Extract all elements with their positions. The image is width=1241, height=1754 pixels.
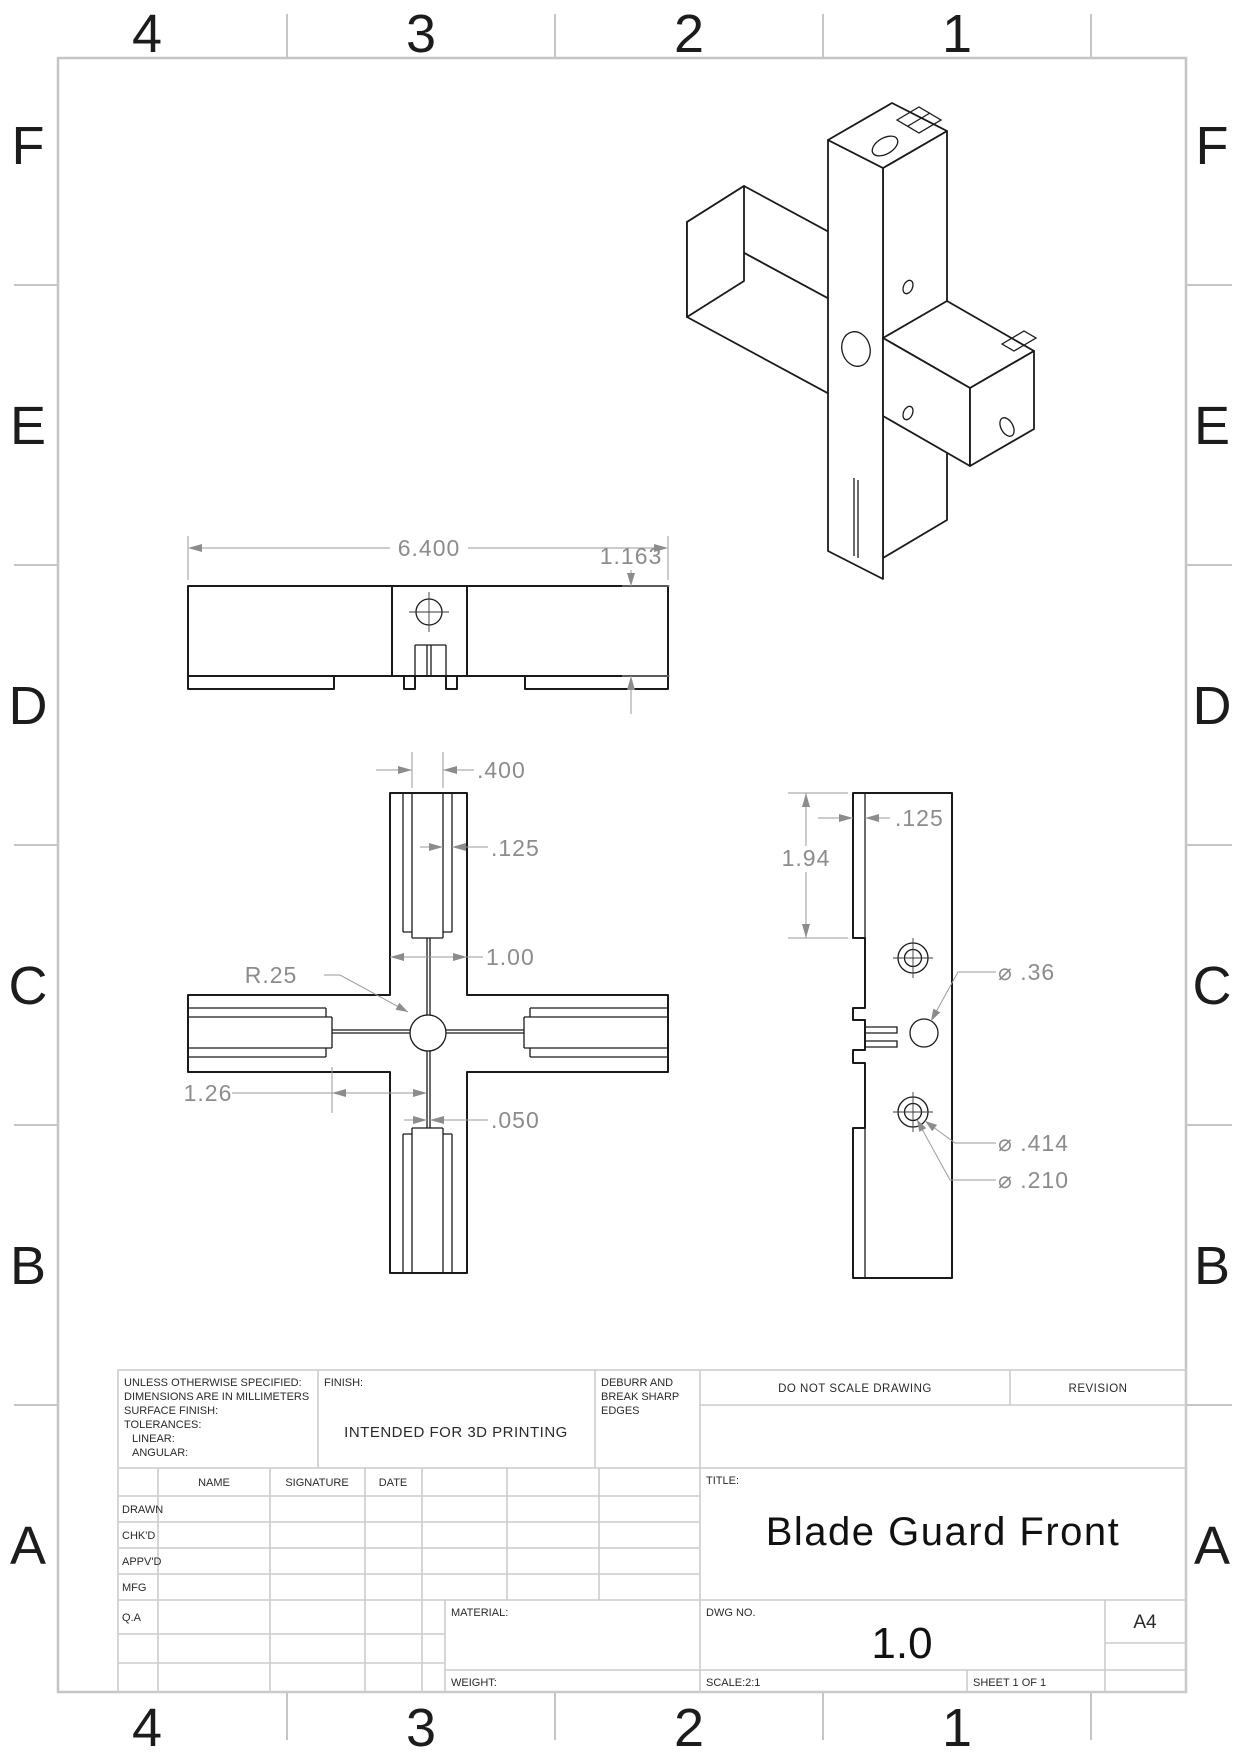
title-block: UNLESS OTHERWISE SPECIFIED: DIMENSIONS A… (118, 1370, 1186, 1692)
front-bottom-slit (427, 1051, 430, 1128)
side-view: 1.94 .125 ⌀ .36 ⌀ .414 ⌀ .210 (782, 793, 1069, 1278)
dim-side-hole: ⌀ .36 (998, 959, 1055, 985)
drawing-sheet: 4 3 2 1 4 3 2 1 F E D C B A F E D C B A (0, 0, 1241, 1754)
finish-label: FINISH: (324, 1377, 363, 1389)
row-label-appvd: APPV'D (122, 1556, 161, 1568)
top-view-hole-centerlines (409, 592, 449, 632)
dim-front-slit: .050 (491, 1107, 540, 1133)
row-label-qa: Q.A (122, 1612, 142, 1624)
weight-label: WEIGHT: (451, 1677, 497, 1689)
tolerance-note-line: TOLERANCES: (124, 1419, 201, 1431)
revision-label: REVISION (1069, 1383, 1128, 1395)
top-view-lip (188, 676, 668, 689)
tolerance-note-line: UNLESS OTHERWISE SPECIFIED: (124, 1377, 302, 1389)
zone-row-left: A (10, 1516, 46, 1576)
deburr-note-line: DEBURR AND (601, 1377, 673, 1389)
dim-side-cbore: ⌀ .414 (998, 1130, 1069, 1156)
side-slit-walls (865, 1027, 897, 1047)
zone-col-bottom: 4 (132, 1698, 162, 1754)
zone-row-right: C (1193, 956, 1232, 1016)
row-label-drawn: DRAWN (122, 1504, 163, 1516)
row-label-mfg: MFG (122, 1582, 146, 1594)
dim-arrows-side-flange (839, 814, 879, 822)
zone-row-left: C (9, 956, 48, 1016)
front-bottom-arm-channel (403, 1128, 452, 1273)
material-label: MATERIAL: (451, 1607, 508, 1619)
finish-value: INTENDED FOR 3D PRINTING (344, 1424, 568, 1441)
leader-arrow-cbore (925, 1121, 937, 1131)
deburr-note-line: EDGES (601, 1405, 640, 1417)
front-top-arm-channel (403, 793, 452, 938)
zone-row-left: B (10, 1236, 46, 1296)
zone-col-top: 2 (674, 4, 704, 64)
dim-front-offset: 1.26 (184, 1080, 233, 1106)
front-left-slit (332, 1030, 410, 1033)
zone-col-top: 1 (942, 4, 972, 64)
tolerance-note-line: ANGULAR: (132, 1447, 188, 1459)
front-view-outline (188, 793, 668, 1273)
zone-row-right: E (1194, 396, 1230, 456)
row-label-chkd: CHK'D (122, 1530, 155, 1542)
zone-col-top: 4 (132, 4, 162, 64)
column-header-signature: SIGNATURE (285, 1477, 348, 1489)
tolerance-note-line: LINEAR: (132, 1433, 175, 1445)
dim-side-drill: ⌀ .210 (998, 1167, 1069, 1193)
tolerance-note-line: DIMENSIONS ARE IN MILLIMETERS (124, 1391, 309, 1403)
zone-row-left: E (10, 396, 46, 456)
zone-row-right: F (1196, 116, 1229, 176)
dim-lines-offset (232, 1067, 425, 1113)
dim-front-radius: R.25 (245, 962, 298, 988)
dim-arrows-slit (413, 1116, 444, 1124)
dim-arrows-pocket (398, 766, 457, 774)
front-left-arm-channel (188, 1008, 332, 1057)
top-view: 6.400 1.163 (188, 535, 670, 714)
dim-side-height: 1.94 (782, 845, 831, 871)
border-frame (58, 58, 1186, 1692)
dwg-no-value: 1.0 (871, 1619, 932, 1668)
top-view-slot (415, 645, 446, 676)
zone-row-right: B (1194, 1236, 1230, 1296)
dim-front-arm: 1.00 (486, 944, 535, 970)
sheet-frame (14, 14, 1232, 1740)
zone-col-top: 3 (406, 4, 436, 64)
dim-lines-height (622, 570, 670, 714)
drawing-canvas: 4 3 2 1 4 3 2 1 F E D C B A F E D C B A (0, 0, 1241, 1754)
zone-col-bottom: 1 (942, 1698, 972, 1754)
front-right-arm-channel (524, 1008, 668, 1057)
dim-arrows-wall (429, 843, 466, 851)
leader-hole (931, 972, 996, 1021)
dim-lines-pocket (376, 752, 474, 788)
column-header-date: DATE (379, 1477, 408, 1489)
leader-cbore (925, 1121, 996, 1143)
dim-top-height: 1.163 (600, 543, 663, 569)
dim-side-flange: .125 (895, 805, 944, 831)
dim-top-width: 6.400 (398, 535, 461, 561)
leader-radius (324, 975, 408, 1012)
dim-front-pocket: .400 (477, 757, 526, 783)
zone-col-bottom: 3 (406, 1698, 436, 1754)
leader-drill (917, 1120, 996, 1180)
front-top-slit (427, 938, 430, 1015)
zone-row-left: D (9, 676, 48, 736)
dim-front-wall: .125 (491, 835, 540, 861)
isometric-view (687, 103, 1036, 579)
zone-row-right: A (1194, 1516, 1230, 1576)
zone-col-bottom: 2 (674, 1698, 704, 1754)
zone-row-right: D (1193, 676, 1232, 736)
deburr-note-line: BREAK SHARP (601, 1391, 679, 1403)
dim-arrows-height (627, 573, 635, 690)
paper-size: A4 (1133, 1612, 1157, 1633)
scale-label: SCALE:2:1 (706, 1677, 760, 1689)
front-view: .400 .125 1.00 R.25 1.26 .050 (184, 752, 668, 1273)
zone-labels: 4 3 2 1 4 3 2 1 F E D C B A F E D C B A (9, 4, 1232, 1754)
front-right-slit (446, 1030, 524, 1033)
front-center-hole (410, 1015, 446, 1051)
iso-beam-front-face (828, 140, 883, 579)
title-label: TITLE: (706, 1475, 739, 1487)
sheet-label: SHEET 1 OF 1 (973, 1677, 1046, 1689)
do-not-scale-note: DO NOT SCALE DRAWING (778, 1383, 932, 1395)
side-through-hole (910, 1019, 938, 1047)
leader-arrow-hole (931, 1009, 940, 1021)
side-cbore-upper-centerlines (893, 938, 933, 978)
side-cbore-lower-centerlines (893, 1092, 933, 1132)
column-header-name: NAME (198, 1477, 230, 1489)
dwg-no-label: DWG NO. (706, 1607, 756, 1619)
zone-row-left: F (12, 116, 45, 176)
drawing-title: Blade Guard Front (766, 1510, 1121, 1554)
leader-arrow-radius (396, 1003, 408, 1012)
tolerance-note-line: SURFACE FINISH: (124, 1405, 218, 1417)
